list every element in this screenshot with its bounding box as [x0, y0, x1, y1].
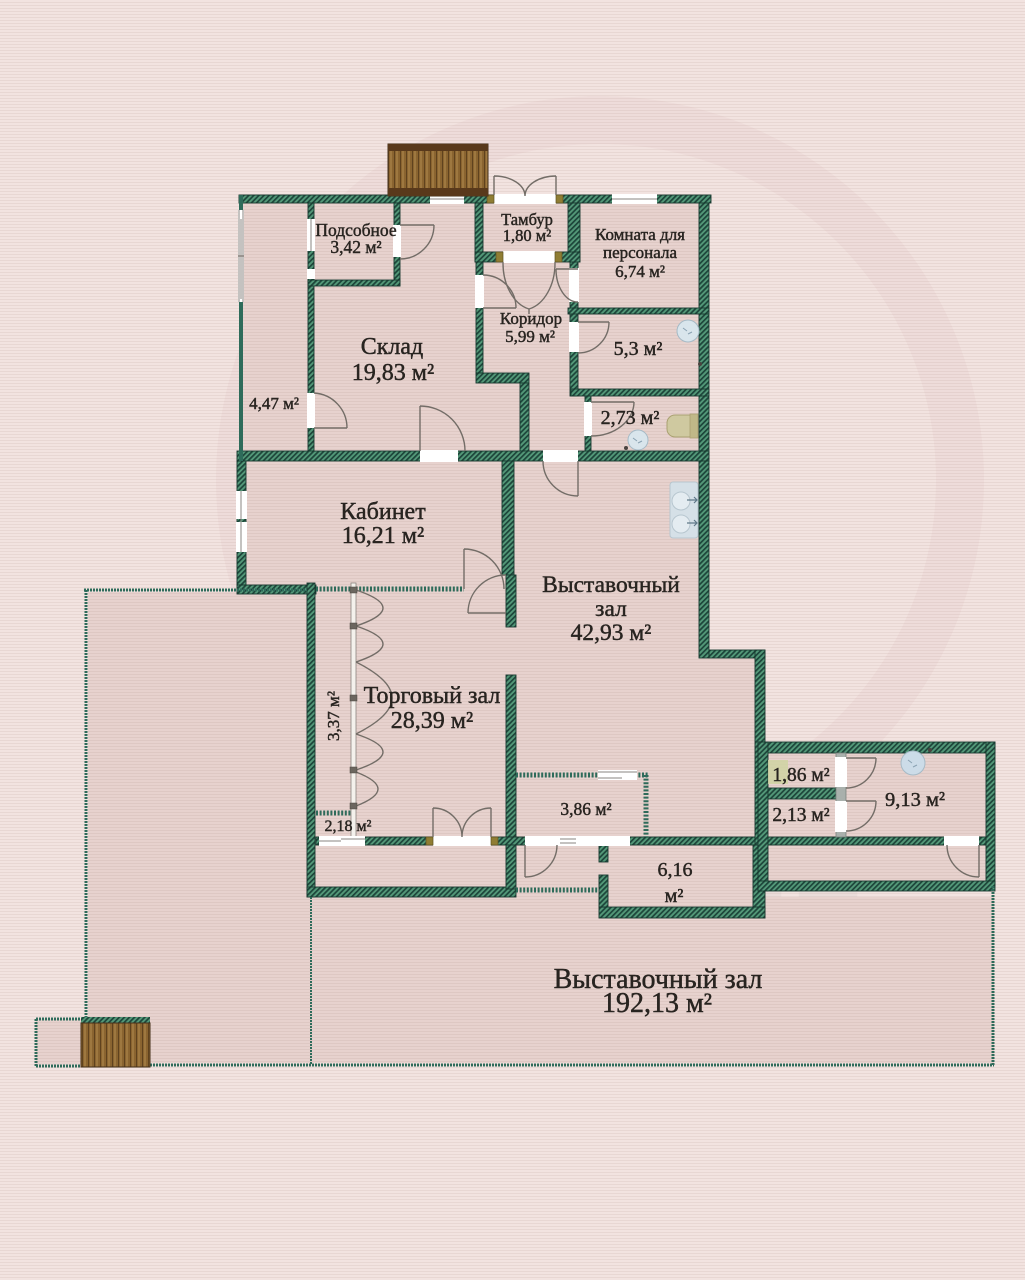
svg-text:персонала: персонала: [603, 243, 677, 262]
svg-text:Комната для: Комната для: [595, 225, 685, 244]
svg-text:1,86 м²: 1,86 м²: [772, 765, 829, 786]
svg-text:3,37 м²: 3,37 м²: [324, 691, 343, 741]
svg-text:м²: м²: [665, 885, 684, 907]
svg-text:16,21 м²: 16,21 м²: [342, 523, 424, 549]
svg-text:2,18 м²: 2,18 м²: [325, 818, 372, 835]
svg-text:19,83 м²: 19,83 м²: [352, 360, 434, 386]
svg-text:6,16: 6,16: [658, 859, 693, 881]
svg-text:2,13 м²: 2,13 м²: [772, 805, 829, 826]
svg-text:4,47 м²: 4,47 м²: [249, 394, 299, 413]
svg-text:Коридор: Коридор: [500, 309, 562, 328]
svg-text:5,99 м²: 5,99 м²: [505, 327, 555, 346]
svg-text:3,42 м²: 3,42 м²: [330, 237, 381, 257]
svg-text:зал: зал: [595, 596, 627, 622]
svg-text:Кабинет: Кабинет: [340, 499, 426, 525]
svg-text:6,74 м²: 6,74 м²: [615, 262, 665, 281]
svg-text:9,13 м²: 9,13 м²: [885, 789, 945, 811]
svg-text:3,86 м²: 3,86 м²: [560, 799, 611, 819]
svg-text:2,73 м²: 2,73 м²: [601, 407, 660, 429]
svg-text:Торговый зал: Торговый зал: [364, 683, 501, 709]
svg-text:Выставочный: Выставочный: [542, 572, 680, 598]
svg-text:28,39 м²: 28,39 м²: [391, 708, 473, 734]
svg-text:192,13 м²: 192,13 м²: [602, 988, 712, 1019]
svg-text:Склад: Склад: [361, 334, 424, 360]
svg-text:1,80 м²: 1,80 м²: [503, 226, 551, 245]
svg-text:5,3 м²: 5,3 м²: [614, 338, 663, 360]
svg-text:42,93 м²: 42,93 м²: [571, 620, 652, 646]
